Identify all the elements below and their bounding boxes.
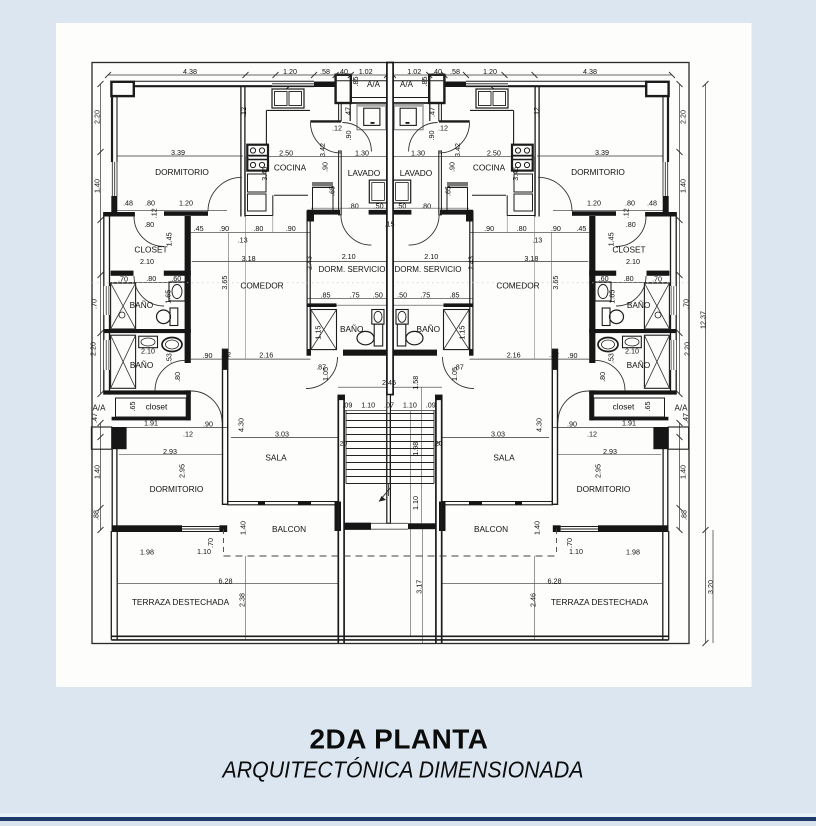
svg-text:1.10: 1.10	[403, 401, 417, 410]
svg-text:.13: .13	[532, 235, 542, 244]
svg-text:.12: .12	[150, 208, 159, 218]
svg-text:1.10: 1.10	[411, 496, 420, 510]
svg-text:2.16: 2.16	[507, 351, 521, 360]
svg-text:3.42: 3.42	[318, 143, 327, 157]
svg-text:LAVADO: LAVADO	[400, 168, 433, 178]
svg-text:.85: .85	[420, 77, 429, 87]
svg-text:6.28: 6.28	[548, 577, 562, 586]
svg-text:4.38: 4.38	[183, 67, 197, 76]
svg-text:3.42: 3.42	[453, 143, 462, 157]
svg-text:.80: .80	[598, 372, 607, 382]
svg-text:1.20: 1.20	[587, 199, 601, 208]
svg-text:.58: .58	[450, 67, 460, 76]
svg-text:BAÑO: BAÑO	[130, 360, 154, 370]
svg-text:.50: .50	[396, 201, 406, 210]
svg-text:.12: .12	[183, 430, 193, 439]
svg-text:1.40: 1.40	[679, 465, 688, 479]
svg-text:.53: .53	[607, 353, 616, 363]
svg-text:1.20: 1.20	[179, 199, 193, 208]
svg-text:.47: .47	[428, 107, 437, 117]
svg-text:4.30: 4.30	[237, 418, 246, 432]
svg-text:.12: .12	[549, 350, 559, 359]
svg-text:SALA: SALA	[493, 453, 515, 463]
svg-text:DORMITORIO: DORMITORIO	[571, 167, 625, 177]
svg-text:.90: .90	[567, 420, 577, 429]
svg-text:.90: .90	[321, 162, 330, 172]
svg-text:2.43: 2.43	[305, 256, 314, 270]
svg-text:closet: closet	[613, 402, 635, 412]
svg-text:.80: .80	[144, 220, 154, 229]
svg-text:3.18: 3.18	[242, 254, 256, 263]
svg-text:.48: .48	[123, 199, 133, 208]
svg-text:3.45: 3.45	[260, 167, 269, 181]
svg-text:.88: .88	[680, 510, 689, 520]
svg-text:1.05: 1.05	[450, 367, 459, 381]
svg-text:2.45: 2.45	[382, 378, 396, 387]
svg-text:2.95: 2.95	[594, 464, 603, 478]
svg-text:2.46: 2.46	[529, 593, 538, 607]
svg-text:3.03: 3.03	[491, 430, 505, 439]
svg-text:1.40: 1.40	[533, 521, 542, 535]
svg-text:.90: .90	[484, 224, 494, 233]
svg-text:DORMITORIO: DORMITORIO	[155, 167, 209, 177]
svg-text:.70: .70	[682, 299, 691, 309]
svg-text:2.50: 2.50	[279, 148, 293, 157]
svg-text:COCINA: COCINA	[473, 163, 506, 173]
svg-text:.70: .70	[206, 538, 215, 548]
svg-text:3.39: 3.39	[171, 148, 185, 157]
svg-text:.80: .80	[349, 201, 359, 210]
svg-text:2.20: 2.20	[89, 342, 98, 356]
svg-text:.90: .90	[219, 224, 229, 233]
svg-text:LAVADO: LAVADO	[348, 168, 381, 178]
svg-text:2.10: 2.10	[625, 346, 639, 355]
svg-text:.12: .12	[587, 430, 597, 439]
svg-text:.75: .75	[350, 290, 360, 299]
svg-text:.70: .70	[565, 538, 574, 548]
svg-text:2.10: 2.10	[141, 346, 155, 355]
svg-text:.12: .12	[221, 350, 231, 359]
svg-text:.70: .70	[90, 299, 99, 309]
svg-text:.80: .80	[421, 201, 431, 210]
svg-text:.09: .09	[426, 401, 436, 410]
svg-text:TERRAZA DESTECHADA: TERRAZA DESTECHADA	[551, 597, 649, 607]
svg-text:.80: .80	[253, 224, 263, 233]
svg-text:.40: .40	[432, 67, 442, 76]
svg-text:.85: .85	[450, 290, 460, 299]
svg-text:3.18: 3.18	[524, 254, 538, 263]
svg-text:1.10: 1.10	[361, 401, 375, 410]
svg-text:.75: .75	[420, 290, 430, 299]
svg-text:.80: .80	[624, 274, 634, 283]
svg-text:.47: .47	[90, 413, 99, 423]
svg-text:.58: .58	[320, 67, 330, 76]
svg-text:.12: .12	[438, 124, 448, 133]
svg-text:A/A: A/A	[367, 80, 381, 89]
svg-text:CLOSET: CLOSET	[612, 244, 645, 254]
svg-text:.90: .90	[427, 131, 436, 141]
svg-text:12.37: 12.37	[699, 311, 708, 329]
svg-text:.60: .60	[599, 274, 609, 283]
svg-text:BAÑO: BAÑO	[340, 324, 364, 334]
svg-text:.47: .47	[681, 413, 690, 423]
svg-text:DORM. SERVICIO: DORM. SERVICIO	[395, 265, 462, 274]
svg-text:1.40: 1.40	[93, 465, 102, 479]
svg-text:1.45: 1.45	[165, 232, 174, 246]
svg-text:BAÑO: BAÑO	[130, 300, 154, 310]
svg-text:1.30: 1.30	[411, 149, 425, 158]
svg-text:1.20: 1.20	[483, 67, 497, 76]
svg-text:.50: .50	[373, 290, 383, 299]
svg-text:.07: .07	[384, 401, 394, 410]
svg-text:BALCON: BALCON	[272, 524, 306, 534]
svg-text:1.91: 1.91	[144, 419, 158, 428]
svg-text:4.38: 4.38	[583, 67, 597, 76]
svg-text:3.20: 3.20	[706, 580, 715, 594]
svg-text:.88: .88	[92, 510, 101, 520]
svg-text:.50: .50	[374, 201, 384, 210]
svg-text:1.02: 1.02	[407, 67, 421, 76]
svg-text:2.20: 2.20	[679, 110, 688, 124]
svg-text:.65: .65	[444, 186, 453, 196]
svg-text:.85: .85	[321, 290, 331, 299]
svg-text:2.43: 2.43	[467, 256, 476, 270]
svg-text:.13: .13	[238, 235, 248, 244]
svg-text:1.02: 1.02	[359, 67, 373, 76]
svg-text:closet: closet	[146, 402, 168, 412]
svg-text:.70: .70	[652, 275, 662, 284]
svg-text:COCINA: COCINA	[274, 163, 307, 173]
svg-text:.40: .40	[338, 67, 348, 76]
svg-text:.65: .65	[128, 402, 137, 412]
svg-text:.20: .20	[338, 441, 348, 448]
svg-text:.45: .45	[576, 224, 586, 233]
svg-text:2.93: 2.93	[163, 447, 177, 456]
svg-text:2.20: 2.20	[93, 110, 102, 124]
svg-text:1.40: 1.40	[93, 179, 102, 193]
svg-text:.60: .60	[171, 274, 181, 283]
svg-text:2.16: 2.16	[259, 351, 273, 360]
svg-text:.80: .80	[145, 199, 155, 208]
svg-text:.90: .90	[551, 224, 561, 233]
svg-text:1.20: 1.20	[283, 67, 297, 76]
svg-text:.90: .90	[344, 131, 353, 141]
svg-text:TERRAZA DESTECHADA: TERRAZA DESTECHADA	[132, 597, 230, 607]
svg-text:4.30: 4.30	[535, 418, 544, 432]
svg-text:BAÑO: BAÑO	[627, 360, 651, 370]
svg-text:.12: .12	[622, 208, 631, 218]
svg-text:1.40: 1.40	[679, 179, 688, 193]
svg-text:2.20: 2.20	[683, 342, 692, 356]
svg-text:.53: .53	[165, 353, 174, 363]
svg-text:2.10: 2.10	[342, 252, 356, 261]
svg-text:.90: .90	[286, 224, 296, 233]
svg-text:1.05: 1.05	[321, 367, 330, 381]
svg-text:1.98: 1.98	[140, 548, 154, 557]
svg-text:A/A: A/A	[93, 404, 107, 413]
svg-text:1.98: 1.98	[626, 548, 640, 557]
svg-text:BAÑO: BAÑO	[417, 324, 441, 334]
svg-text:A/A: A/A	[675, 404, 689, 413]
svg-text:3.45: 3.45	[511, 167, 520, 181]
svg-text:1.98: 1.98	[411, 442, 420, 456]
svg-text:.12: .12	[332, 124, 342, 133]
svg-text:3.65: 3.65	[220, 276, 229, 290]
svg-text:1.65: 1.65	[608, 290, 617, 304]
svg-text:2DA PLANTA: 2DA PLANTA	[310, 724, 489, 755]
svg-text:.47: .47	[344, 107, 353, 117]
svg-text:SALA: SALA	[265, 453, 287, 463]
svg-text:1.91: 1.91	[622, 419, 636, 428]
svg-text:2.50: 2.50	[487, 148, 501, 157]
svg-text:.90: .90	[203, 351, 213, 360]
svg-text:1.45: 1.45	[607, 232, 616, 246]
svg-text:.90: .90	[568, 351, 578, 360]
svg-text:.15: .15	[385, 220, 395, 229]
svg-text:2.10: 2.10	[140, 257, 154, 266]
svg-text:COMEDOR: COMEDOR	[496, 281, 539, 291]
svg-text:3.39: 3.39	[595, 148, 609, 157]
svg-text:.70: .70	[118, 275, 128, 284]
svg-text:.80: .80	[146, 274, 156, 283]
svg-text:2.95: 2.95	[178, 464, 187, 478]
svg-text:A/A: A/A	[400, 80, 414, 89]
svg-text:1.40: 1.40	[239, 521, 248, 535]
svg-text:1.15: 1.15	[314, 326, 323, 340]
svg-text:.09: .09	[342, 401, 352, 410]
svg-text:.80: .80	[625, 199, 635, 208]
svg-text:DORMITORIO: DORMITORIO	[150, 484, 204, 494]
svg-text:1.15: 1.15	[457, 326, 466, 340]
svg-text:.90: .90	[203, 420, 213, 429]
svg-text:.80: .80	[626, 220, 636, 229]
svg-text:.65: .65	[643, 402, 652, 412]
svg-text:.65: .65	[328, 186, 337, 196]
svg-text:2.10: 2.10	[626, 257, 640, 266]
svg-text:2.38: 2.38	[238, 593, 247, 607]
svg-text:ARQUITECTÓNICA DIMENSIONADA: ARQUITECTÓNICA DIMENSIONADA	[221, 757, 584, 783]
svg-text:3.65: 3.65	[551, 276, 560, 290]
svg-text:.20: .20	[433, 441, 443, 448]
svg-text:1.58: 1.58	[411, 376, 420, 390]
svg-text:CLOSET: CLOSET	[134, 244, 167, 254]
svg-text:.80: .80	[173, 372, 182, 382]
svg-text:DORMITORIO: DORMITORIO	[577, 484, 631, 494]
svg-text:3.17: 3.17	[415, 580, 424, 594]
svg-text:DORM. SERVICIO: DORM. SERVICIO	[319, 265, 386, 274]
svg-text:.50: .50	[397, 290, 407, 299]
svg-text:.80: .80	[517, 224, 527, 233]
svg-text:BALCON: BALCON	[474, 524, 508, 534]
svg-text:1.30: 1.30	[355, 149, 369, 158]
svg-text:.90: .90	[448, 162, 457, 172]
svg-text:.45: .45	[194, 224, 204, 233]
svg-text:1.65: 1.65	[163, 290, 172, 304]
svg-text:.12: .12	[239, 107, 248, 117]
svg-text:2.93: 2.93	[603, 447, 617, 456]
svg-text:.85: .85	[351, 77, 360, 87]
svg-text:.48: .48	[647, 199, 657, 208]
svg-text:6.28: 6.28	[219, 577, 233, 586]
svg-text:.12: .12	[532, 107, 541, 117]
svg-text:COMEDOR: COMEDOR	[240, 281, 283, 291]
svg-text:BAÑO: BAÑO	[627, 300, 651, 310]
svg-text:3.03: 3.03	[275, 430, 289, 439]
svg-text:2.10: 2.10	[424, 252, 438, 261]
